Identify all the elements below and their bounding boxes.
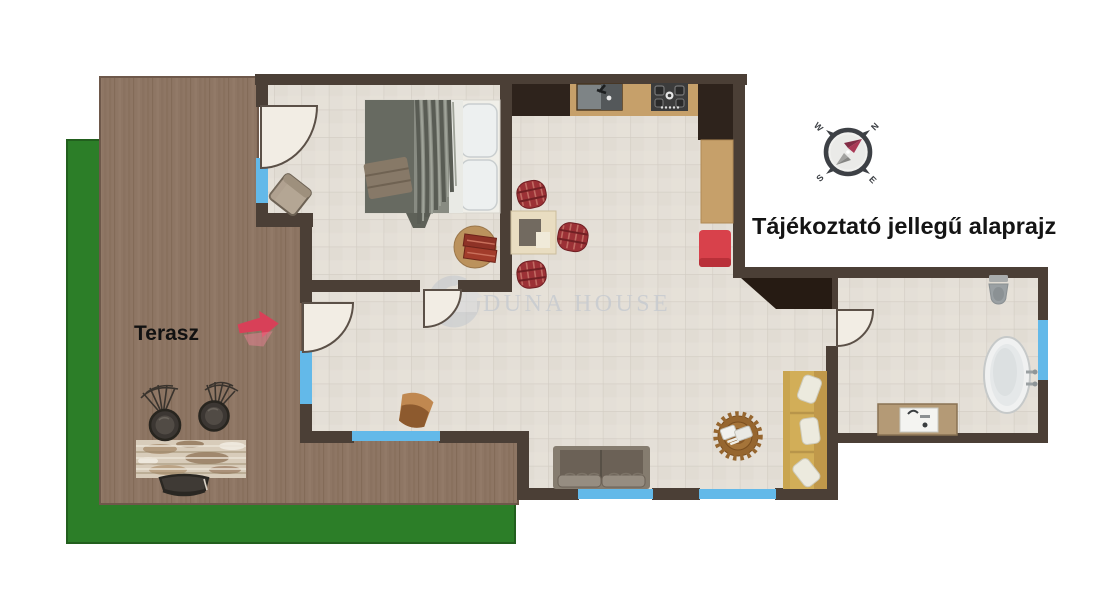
svg-text:Terasz: Terasz: [134, 322, 199, 345]
svg-text:Tájékoztató jellegű alaprajz: Tájékoztató jellegű alaprajz: [752, 213, 1056, 239]
svg-text:DUNA HOUSE: DUNA HOUSE: [483, 291, 671, 317]
